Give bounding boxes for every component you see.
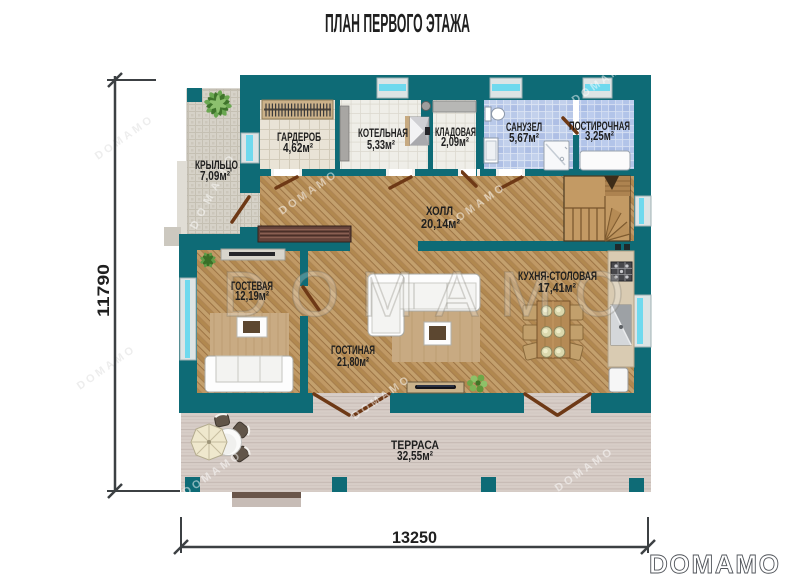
svg-text:DOMAMO: DOMAMO bbox=[649, 549, 782, 579]
svg-text:DOMAMO: DOMAMO bbox=[93, 113, 157, 163]
svg-text:21,80м²: 21,80м² bbox=[337, 354, 369, 369]
svg-text:13250: 13250 bbox=[392, 528, 437, 547]
svg-text:11790: 11790 bbox=[94, 264, 113, 317]
svg-text:17,41м²: 17,41м² bbox=[538, 280, 577, 295]
svg-text:7,09м²: 7,09м² bbox=[200, 168, 231, 183]
svg-text:32,55м²: 32,55м² bbox=[397, 448, 434, 463]
svg-text:2,09м²: 2,09м² bbox=[441, 134, 469, 149]
svg-text:5,67м²: 5,67м² bbox=[509, 130, 540, 145]
svg-text:5,33м²: 5,33м² bbox=[367, 137, 395, 152]
svg-text:12,19м²: 12,19м² bbox=[235, 288, 269, 303]
svg-text:ПЛАН ПЕРВОГО ЭТАЖА: ПЛАН ПЕРВОГО ЭТАЖА bbox=[325, 8, 470, 38]
svg-text:4,62м²: 4,62м² bbox=[283, 140, 314, 155]
svg-text:3,25м²: 3,25м² bbox=[585, 128, 614, 143]
svg-text:20,14м²: 20,14м² bbox=[421, 216, 461, 231]
svg-text:DOMAMO: DOMAMO bbox=[75, 343, 139, 393]
